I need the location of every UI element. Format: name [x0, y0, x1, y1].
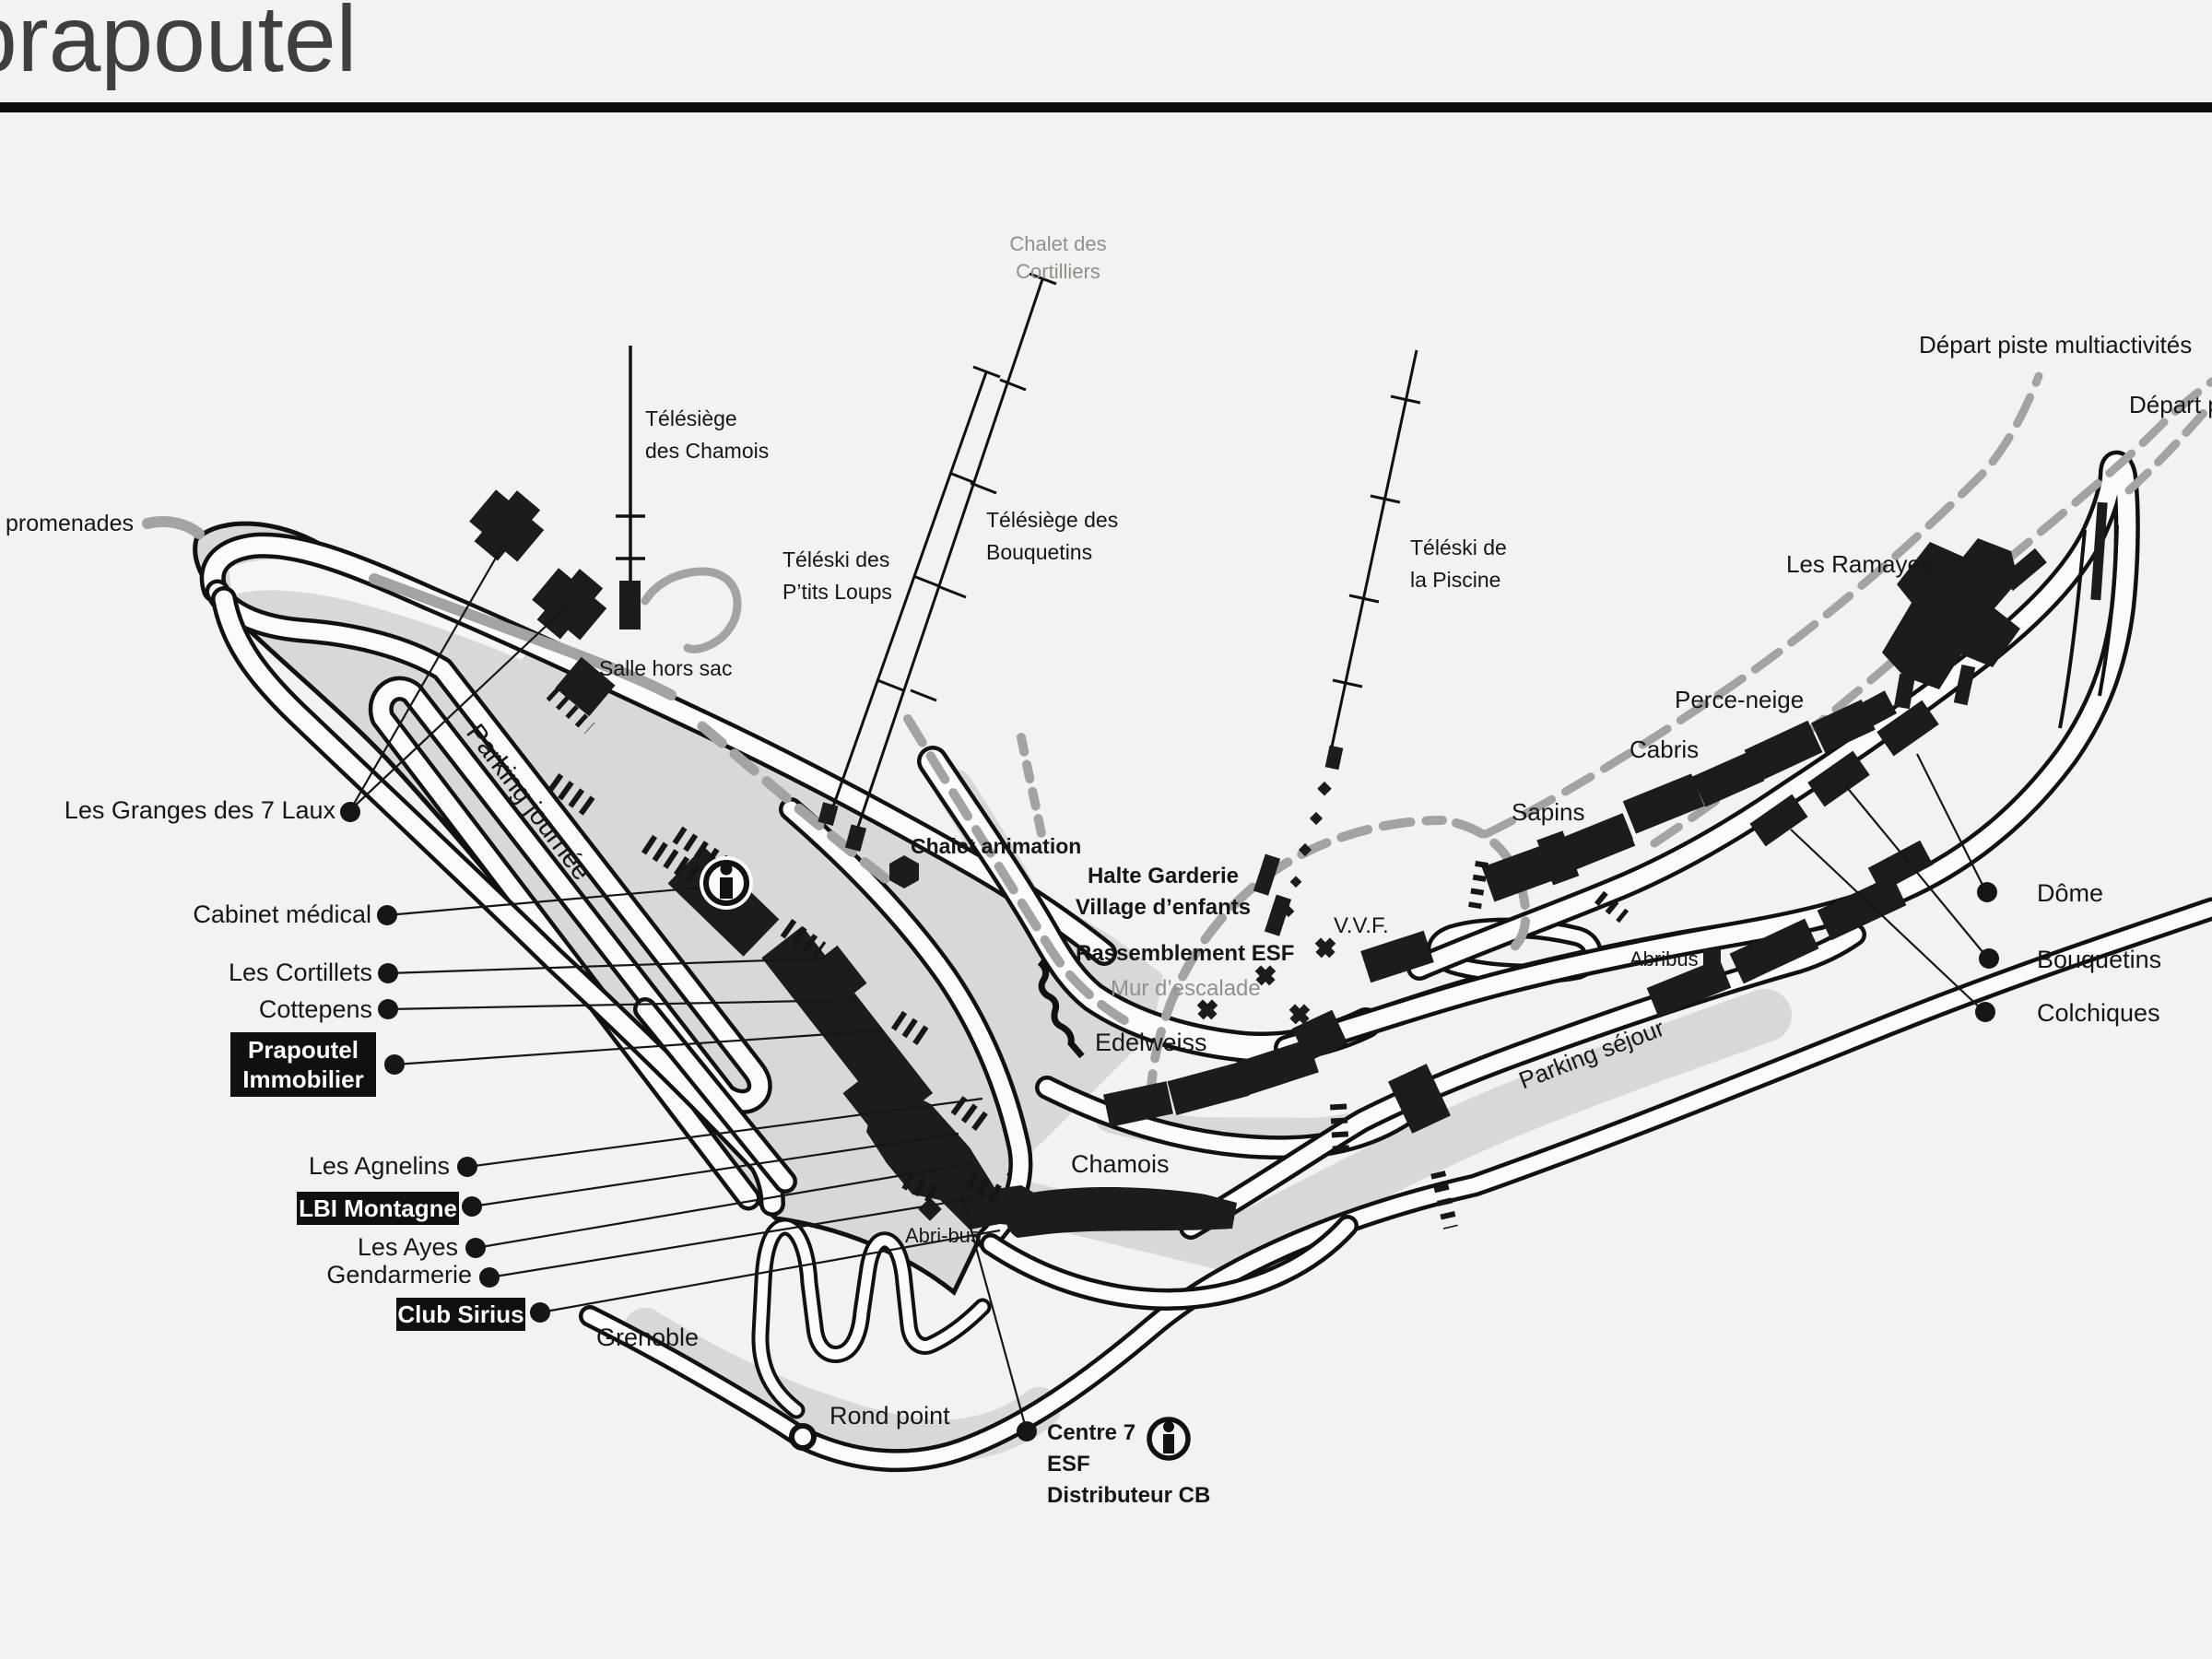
- svg-text:Edelweiss: Edelweiss: [1095, 1029, 1207, 1056]
- svg-text:prapoutel: prapoutel: [0, 0, 357, 91]
- svg-text:Salle hors sac: Salle hors sac: [599, 656, 732, 680]
- svg-text:Les Cortillets: Les Cortillets: [229, 959, 372, 986]
- svg-text:promenades: promenades: [6, 511, 134, 536]
- svg-text:V.V.F.: V.V.F.: [1334, 913, 1389, 938]
- svg-text:Chalet des: Chalet des: [1009, 232, 1106, 255]
- svg-text:Perce-neige: Perce-neige: [1675, 686, 1804, 713]
- svg-text:Chamois: Chamois: [1071, 1150, 1170, 1178]
- svg-text:Cabinet médical: Cabinet médical: [193, 900, 371, 928]
- svg-text:Bouquetins: Bouquetins: [2037, 946, 2161, 973]
- svg-text:Immobilier: Immobilier: [242, 1065, 363, 1093]
- svg-text:Colchiques: Colchiques: [2037, 999, 2160, 1027]
- svg-text:Rassemblement ESF: Rassemblement ESF: [1076, 941, 1294, 966]
- svg-text:Téléski des: Téléski des: [782, 547, 889, 571]
- svg-text:Cottepens: Cottepens: [259, 995, 372, 1023]
- svg-text:Grenoble: Grenoble: [596, 1324, 699, 1351]
- svg-text:Télésiège: Télésiège: [645, 406, 737, 430]
- svg-text:Chalet animation: Chalet animation: [911, 834, 1081, 858]
- svg-text:Centre 7: Centre 7: [1047, 1420, 1135, 1445]
- svg-text:Téléski de: Téléski de: [1410, 535, 1507, 559]
- svg-text:Halte Garderie: Halte Garderie: [1088, 864, 1239, 888]
- svg-text:Rond point: Rond point: [829, 1402, 950, 1430]
- svg-text:des Chamois: des Chamois: [645, 439, 769, 463]
- svg-text:Club Sirius: Club Sirius: [397, 1300, 524, 1328]
- svg-text:Cortilliers: Cortilliers: [1016, 260, 1100, 283]
- svg-text:Abri-bus: Abri-bus: [905, 1224, 981, 1247]
- svg-text:Village d’enfants: Village d’enfants: [1076, 895, 1251, 920]
- svg-text:ESF: ESF: [1047, 1452, 1090, 1477]
- svg-text:Les Ramayes: Les Ramayes: [1786, 550, 1933, 578]
- svg-text:Abribus: Abribus: [1630, 947, 1699, 971]
- svg-text:LBI Montagne: LBI Montagne: [299, 1194, 457, 1222]
- svg-text:Les Ayes: Les Ayes: [358, 1233, 458, 1261]
- svg-text:Mur d’escalade: Mur d’escalade: [1111, 976, 1261, 1001]
- svg-text:Sapins: Sapins: [1512, 798, 1585, 826]
- svg-text:Départ piste multiactivités: Départ piste multiactivités: [1919, 331, 2192, 359]
- svg-text:Départ piste: Départ piste: [2129, 391, 2212, 418]
- svg-text:Dôme: Dôme: [2037, 879, 2103, 907]
- svg-text:Gendarmerie: Gendarmerie: [326, 1261, 472, 1288]
- svg-text:la Piscine: la Piscine: [1410, 568, 1500, 592]
- svg-text:Bouquetins: Bouquetins: [986, 540, 1092, 564]
- svg-text:Prapoutel: Prapoutel: [248, 1036, 359, 1064]
- svg-text:P’tits Loups: P’tits Loups: [782, 580, 892, 604]
- svg-text:Cabris: Cabris: [1630, 735, 1699, 763]
- svg-text:Distributeur CB: Distributeur CB: [1047, 1483, 1210, 1508]
- svg-text:Les Granges des 7 Laux: Les Granges des 7 Laux: [65, 796, 336, 824]
- svg-text:Télésiège des: Télésiège des: [986, 508, 1118, 532]
- svg-text:Les Agnelins: Les Agnelins: [309, 1152, 450, 1180]
